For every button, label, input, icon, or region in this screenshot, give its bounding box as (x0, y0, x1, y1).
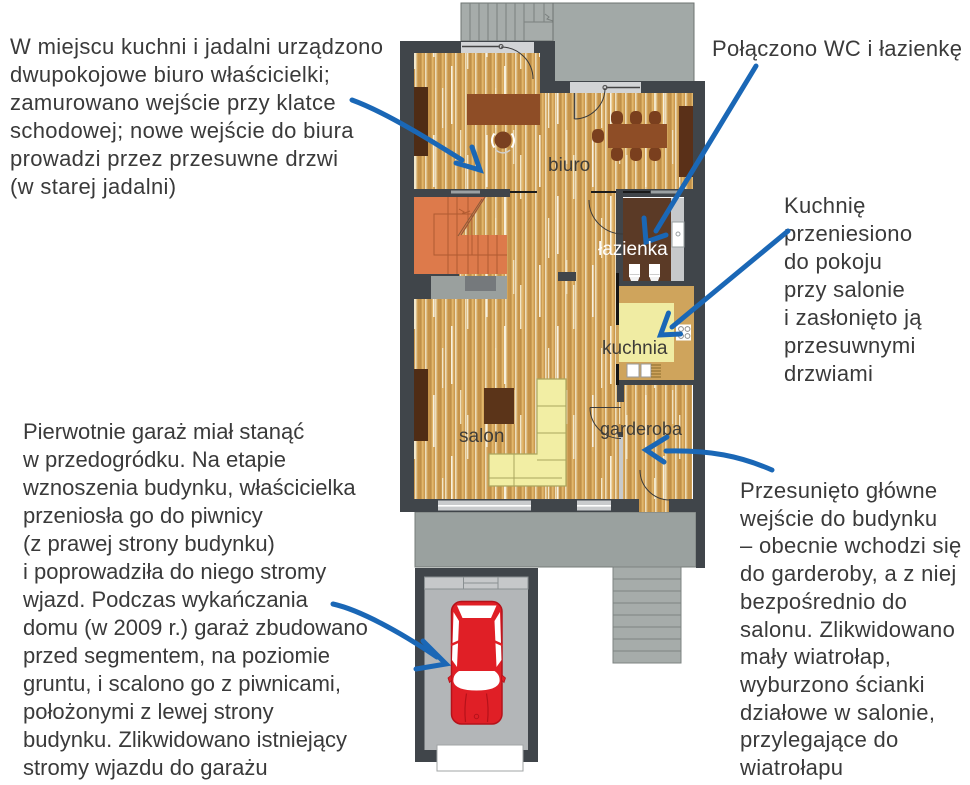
svg-text:salon: salon (459, 426, 504, 447)
svg-text:garderoba: garderoba (600, 419, 683, 439)
svg-text:kuchnia: kuchnia (602, 338, 668, 359)
svg-text:łazienka: łazienka (598, 239, 668, 260)
svg-text:biuro: biuro (548, 155, 590, 176)
